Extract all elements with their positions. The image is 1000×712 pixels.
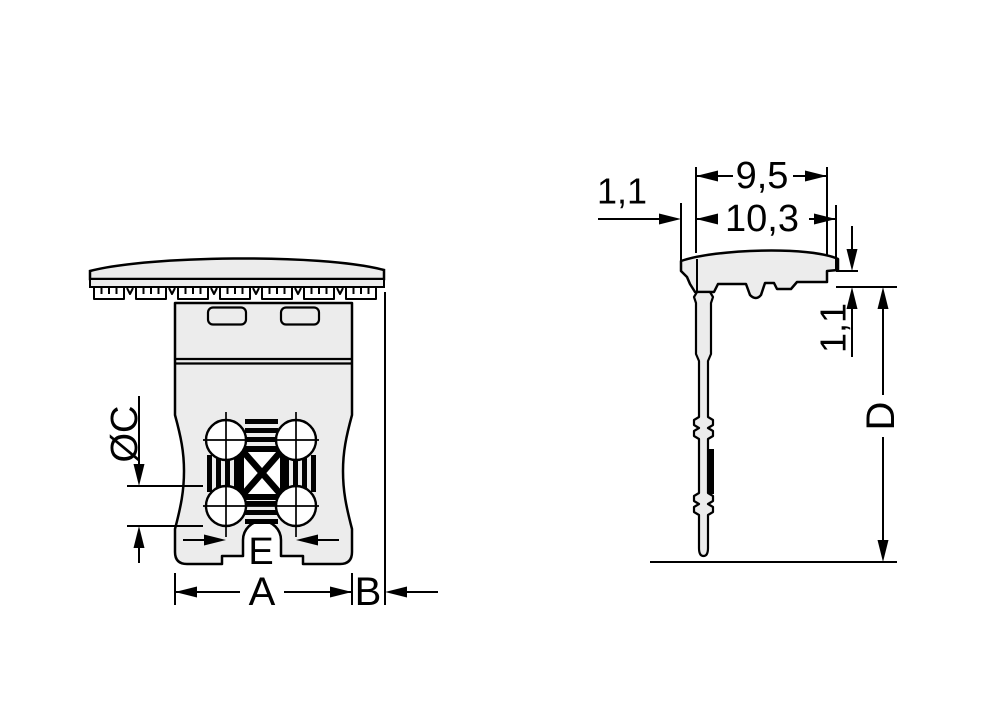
dim-depth: D bbox=[859, 287, 903, 562]
front-view: ØC E A B bbox=[90, 258, 438, 614]
side-view: 9,5 10,3 1,1 1,1 D bbox=[597, 155, 903, 562]
clamp-stripe bbox=[245, 519, 278, 524]
clamp-stripe bbox=[207, 455, 212, 492]
dim-arrow bbox=[814, 214, 836, 225]
front-latch-window-right bbox=[281, 308, 319, 325]
dim-arrow bbox=[330, 587, 352, 598]
tooth-group bbox=[136, 287, 175, 299]
dim-housing-width: A bbox=[175, 570, 352, 614]
side-solder-pin bbox=[694, 292, 713, 556]
dim-label-lip-offset: 1,1 bbox=[597, 171, 647, 212]
clamp-stripe bbox=[245, 419, 278, 424]
dim-arrow bbox=[134, 526, 145, 548]
front-housing-body bbox=[175, 303, 352, 564]
clamp-stripe bbox=[245, 428, 278, 433]
dim-label-overhang: B bbox=[355, 570, 382, 614]
tooth-group bbox=[94, 287, 133, 299]
dim-arrow bbox=[696, 214, 718, 225]
clamp-stripe bbox=[311, 455, 316, 492]
tooth-group bbox=[346, 287, 376, 299]
dim-overhang: B bbox=[355, 292, 438, 614]
tooth-group bbox=[178, 287, 217, 299]
dim-arrow bbox=[659, 214, 681, 225]
front-tooth-strip bbox=[94, 287, 376, 299]
front-cap-lens bbox=[90, 258, 384, 279]
clamp-stripe bbox=[245, 510, 278, 515]
side-pin-contact-strip bbox=[708, 449, 714, 494]
dim-arrow bbox=[805, 171, 827, 182]
dim-arrow bbox=[878, 540, 889, 562]
dim-label-top-width: 9,5 bbox=[736, 155, 789, 197]
tooth-group bbox=[220, 287, 259, 299]
side-cap-profile bbox=[681, 251, 838, 298]
technical-drawing: ØC E A B bbox=[0, 0, 1000, 712]
tooth-group bbox=[262, 287, 301, 299]
dim-arrow bbox=[878, 287, 889, 309]
dim-arrow bbox=[175, 587, 197, 598]
dim-label-depth: D bbox=[859, 402, 903, 431]
dim-arrow bbox=[847, 249, 858, 271]
dim-arrow bbox=[696, 171, 718, 182]
dim-label-housing-width: A bbox=[249, 570, 276, 614]
dim-label-hole-diameter: ØC bbox=[104, 406, 146, 463]
front-cap-band bbox=[90, 279, 384, 287]
dim-label-pole-pitch: E bbox=[248, 531, 273, 573]
tooth-group bbox=[304, 287, 343, 299]
dim-label-total-width: 10,3 bbox=[725, 198, 799, 240]
dim-label-standoff-height: 1,1 bbox=[813, 303, 854, 353]
front-latch-window-left bbox=[208, 308, 246, 325]
dim-arrow bbox=[385, 587, 407, 598]
dim-lip-offset: 1,1 bbox=[597, 171, 681, 266]
dim-arrow bbox=[134, 464, 145, 486]
